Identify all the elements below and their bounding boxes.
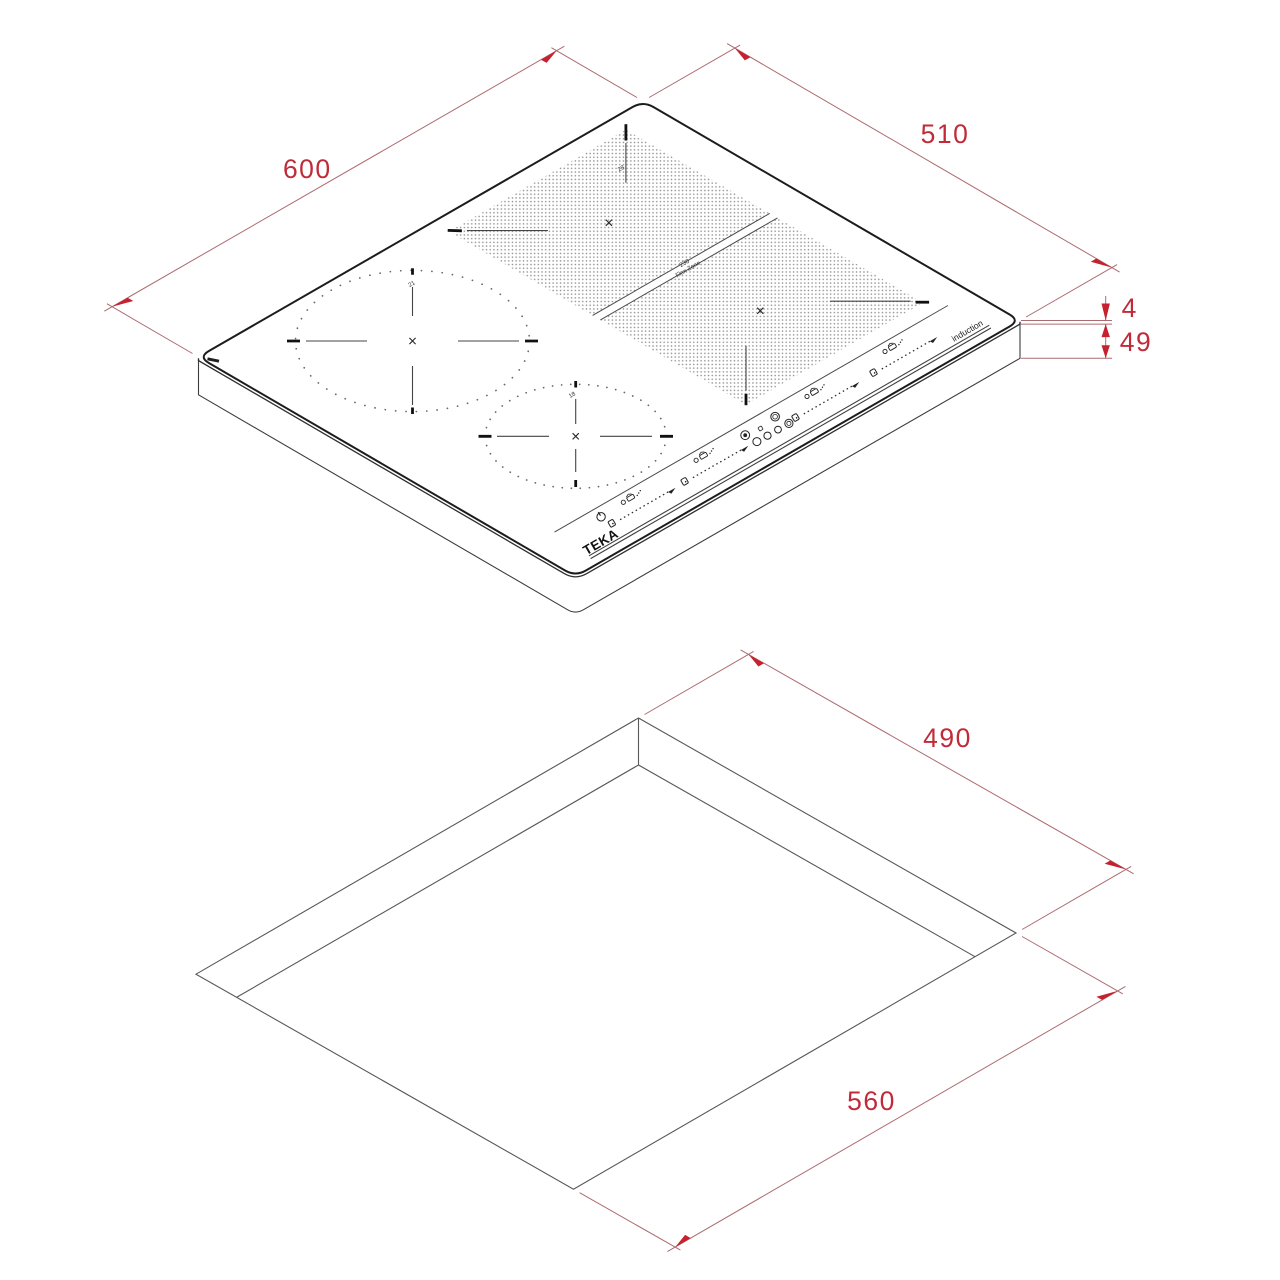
svg-text:4: 4 <box>1122 293 1137 323</box>
svg-text:49: 49 <box>1120 327 1152 357</box>
svg-text:510: 510 <box>921 119 970 149</box>
svg-text:560: 560 <box>847 1086 896 1116</box>
svg-text:600: 600 <box>283 154 332 184</box>
svg-text:490: 490 <box>923 723 972 753</box>
